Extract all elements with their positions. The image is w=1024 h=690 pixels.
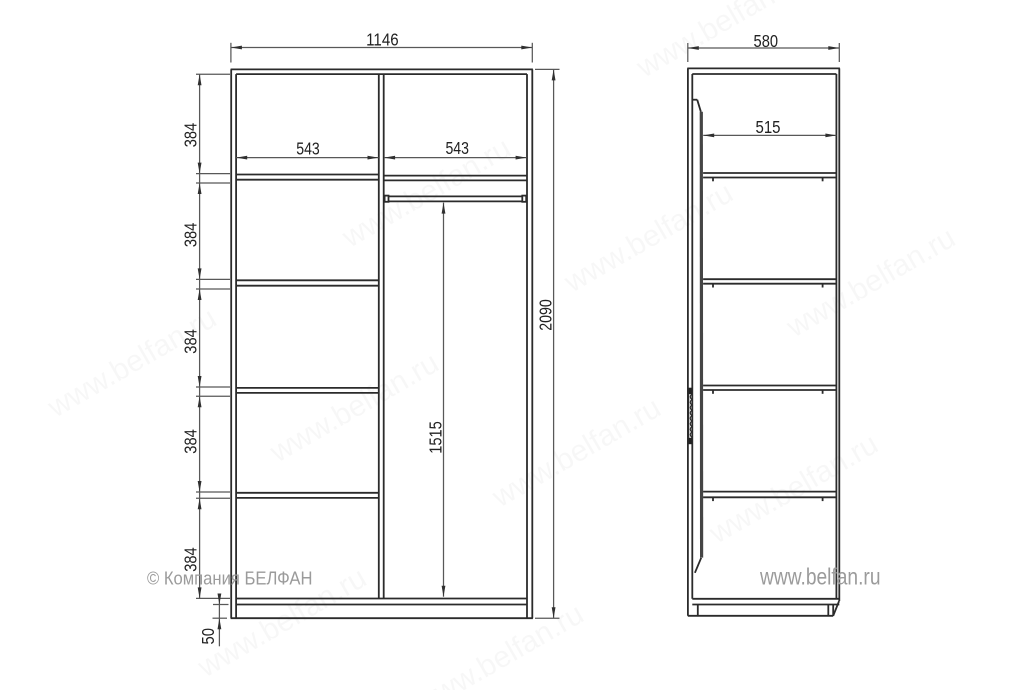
svg-text:1515: 1515 (425, 421, 445, 454)
svg-text:384: 384 (180, 329, 200, 354)
svg-text:www.belfan.ru: www.belfan.ru (759, 564, 880, 590)
svg-text:© Компания БЕЛФАН: © Компания БЕЛФАН (147, 568, 313, 588)
svg-text:515: 515 (756, 117, 781, 137)
svg-text:www.belfan.ru: www.belfan.ru (703, 427, 884, 550)
svg-text:543: 543 (445, 138, 469, 158)
svg-text:www.belfan.ru: www.belfan.ru (336, 131, 517, 254)
svg-text:543: 543 (296, 138, 320, 158)
svg-text:384: 384 (180, 123, 200, 148)
svg-text:www.belfan.ru: www.belfan.ru (630, 0, 811, 85)
svg-text:580: 580 (754, 31, 779, 51)
svg-text:50: 50 (198, 628, 218, 645)
svg-text:384: 384 (180, 429, 200, 454)
svg-text:384: 384 (180, 222, 200, 247)
svg-text:www.belfan.ru: www.belfan.ru (409, 597, 590, 690)
svg-text:2090: 2090 (535, 299, 555, 331)
svg-text:www.belfan.ru: www.belfan.ru (558, 176, 739, 299)
svg-text:www.belfan.ru: www.belfan.ru (486, 391, 667, 514)
svg-text:1146: 1146 (366, 29, 399, 49)
svg-text:www.belfan.ru: www.belfan.ru (264, 346, 445, 469)
svg-text:www.belfan.ru: www.belfan.ru (42, 301, 223, 424)
